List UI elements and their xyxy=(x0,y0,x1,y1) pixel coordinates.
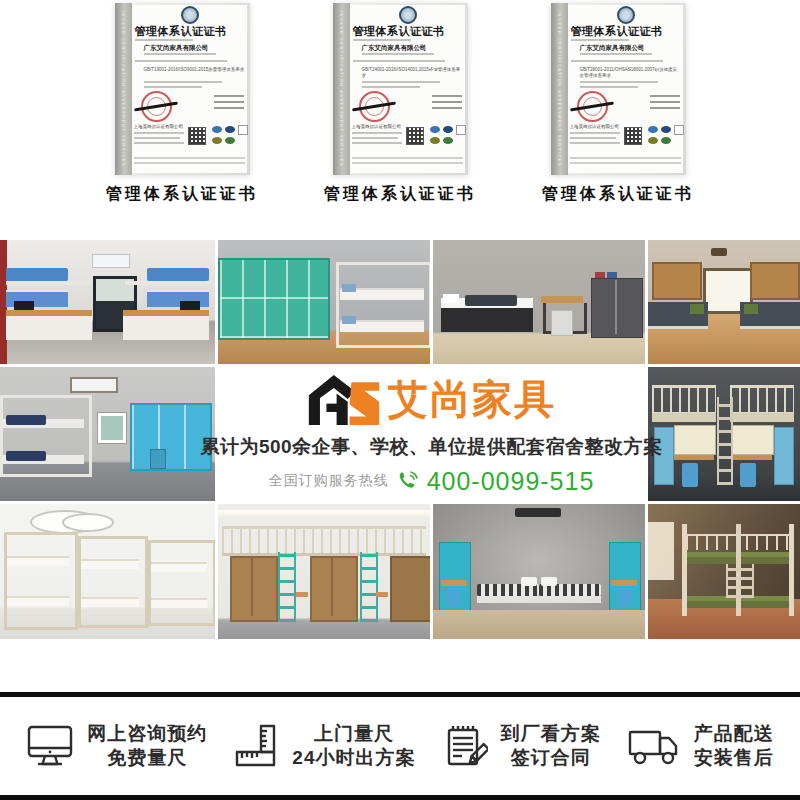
accreditation-badge-icon xyxy=(238,125,248,135)
qr-code-icon xyxy=(406,127,424,145)
date-line-bar xyxy=(650,107,680,109)
service-line1: 产品配送 xyxy=(694,722,774,746)
service-text: 网上咨询预约 免费量尺 xyxy=(87,722,207,770)
certificate-standard: GB/T24001-2016/ISO14001:2015环境管理体系要求 xyxy=(362,67,463,79)
certificate-card: INGEER CERTIFICATION ASSESSMENT SERVICES… xyxy=(333,3,468,175)
bunk-frame xyxy=(78,536,148,628)
certificate-body: 管理体系认证证书 广东艾尚家具有限公司 GB/T28001-2011/OHSAS… xyxy=(568,5,683,173)
pillow xyxy=(541,577,557,586)
contract-icon xyxy=(442,723,488,769)
service-line2: 免费量尺 xyxy=(107,746,187,770)
certificate-group: INGEER CERTIFICATION ASSESSMENT SERVICES… xyxy=(324,3,476,240)
books xyxy=(595,272,605,278)
certificate-caption: 管理体系认证证书 xyxy=(324,184,476,205)
date-line-bar xyxy=(214,101,244,103)
wood-wardrobe-doors xyxy=(230,556,278,622)
bed-frame xyxy=(441,308,533,332)
cloud-ceiling-light xyxy=(62,513,114,532)
accreditation-badge-icon xyxy=(212,137,222,144)
pillow xyxy=(443,294,459,303)
certificate-standard: GB/T19001-2016/ISO9001:2015质量管理体系要求 xyxy=(144,67,245,73)
text-line-bar xyxy=(571,39,629,41)
certifier-emblem-icon xyxy=(399,6,417,24)
certificate-spine: INGEER CERTIFICATION ASSESSMENT SERVICES xyxy=(333,3,350,175)
certificate-spine: INGEER CERTIFICATION ASSESSMENT SERVICES xyxy=(551,3,568,175)
photo-gray-room-single-bed xyxy=(433,240,645,364)
bunk-post xyxy=(682,524,687,616)
service-item-delivery-install: 产品配送 安装售后 xyxy=(627,722,774,770)
hotline-row: 全国订购服务热线 400-0099-515 xyxy=(269,467,595,496)
accreditation-badge-icon xyxy=(456,125,466,135)
blue-locker xyxy=(774,427,794,485)
accreditation-badge-icon xyxy=(443,137,453,144)
bunk-rail xyxy=(6,281,90,285)
desk-hutch xyxy=(732,425,774,455)
text-line-bar xyxy=(352,137,398,139)
lower-mattress xyxy=(81,597,139,607)
photo-cream-bunk-row xyxy=(0,504,215,639)
qr-code-icon xyxy=(188,127,206,145)
service-line1: 到厂看方案 xyxy=(501,722,601,746)
text-line-bar xyxy=(134,137,180,139)
desk-top xyxy=(541,296,583,303)
brand-name: 艾尚家具 xyxy=(388,376,556,422)
ceiling-lamp xyxy=(711,248,727,256)
text-line-bar xyxy=(352,142,402,144)
text-line-bar xyxy=(580,53,652,55)
upper-mattress xyxy=(7,556,69,566)
phone-icon xyxy=(397,470,419,492)
bed-frame xyxy=(539,596,601,603)
certificate-body: 管理体系认证证书 广东艾尚家具有限公司 GB/T19001-2016/ISO90… xyxy=(132,5,247,173)
qr-code-icon xyxy=(624,127,642,145)
certificate-company: 广东艾尚家具有限公司 xyxy=(362,44,427,53)
certificate-spine-text: INGEER CERTIFICATION ASSESSMENT SERVICES xyxy=(557,11,562,167)
bunk-frame xyxy=(336,262,430,348)
certificate-card: INGEER CERTIFICATION ASSESSMENT SERVICES… xyxy=(551,3,686,175)
certifier-emblem-icon xyxy=(617,6,635,24)
text-line-bar xyxy=(144,81,222,83)
upper-mattress xyxy=(151,562,207,572)
photo-loft-green-ladders xyxy=(218,504,430,639)
bunk-post xyxy=(789,524,794,616)
desk-top xyxy=(674,455,714,460)
cabinet-door-line xyxy=(615,280,617,334)
blue-chair xyxy=(682,463,698,487)
blue-chair xyxy=(740,463,756,487)
ceiling-light-strip xyxy=(218,510,430,513)
green-pillow xyxy=(690,304,704,314)
green-ladder xyxy=(360,552,378,622)
accreditation-badge-icon xyxy=(225,137,235,144)
text-line-bar xyxy=(362,81,440,83)
text-line-bar xyxy=(362,86,420,88)
desk-base xyxy=(123,316,209,340)
hotline-number: 400-0099-515 xyxy=(427,467,595,496)
bunk-frame xyxy=(4,532,78,630)
loft-shelf xyxy=(730,413,794,422)
text-line-bar xyxy=(135,60,227,62)
certificate-group: INGEER CERTIFICATION ASSESSMENT SERVICES… xyxy=(542,3,694,240)
date-line-bar xyxy=(214,95,244,97)
truck-icon xyxy=(627,725,681,767)
photo-army-green-bunks xyxy=(648,504,800,639)
laptop xyxy=(180,301,200,310)
service-item-onsite-measure: 上门量尺 24小时出方案 xyxy=(233,722,415,770)
wood-wardrobe-doors xyxy=(390,556,430,622)
promo-page: INGEER CERTIFICATION ASSESSMENT SERVICES… xyxy=(0,0,800,800)
photo-bunk-cyan-wardrobes xyxy=(0,367,215,501)
loft-shelf xyxy=(652,413,716,422)
accreditation-badge-icon xyxy=(648,137,658,144)
service-text: 产品配送 安装售后 xyxy=(694,722,774,770)
bed-frame xyxy=(477,596,539,603)
door-line xyxy=(331,558,333,616)
brand-logo: 艾尚家具 xyxy=(307,373,556,425)
accreditation-badge-icon xyxy=(212,126,222,133)
certificate-caption: 管理体系认证证书 xyxy=(106,184,258,205)
green-ladder xyxy=(278,552,296,622)
service-line1: 网上咨询预约 xyxy=(87,722,207,746)
upper-mattress xyxy=(81,559,139,569)
monitor-icon xyxy=(26,723,74,769)
fine-print-bar xyxy=(570,157,681,159)
date-line-bar xyxy=(650,101,680,103)
certificate-title: 管理体系认证证书 xyxy=(353,24,445,39)
certificate-standard: GB/T28001-2011/OHSAS18001:2007职业健康安全管理体系… xyxy=(580,67,681,79)
tile-floor xyxy=(433,610,645,639)
ruler-icon xyxy=(233,723,279,769)
text-line-bar xyxy=(580,81,658,83)
text-line-bar xyxy=(134,142,184,144)
text-line-bar xyxy=(144,86,202,88)
certificate-company: 广东艾尚家具有限公司 xyxy=(580,44,645,53)
service-line2: 签订合同 xyxy=(511,746,591,770)
date-line-bar xyxy=(432,107,462,109)
blue-chair xyxy=(446,588,461,606)
bunk-rail xyxy=(125,281,209,285)
text-line-bar xyxy=(362,53,434,55)
accreditation-badge-icon xyxy=(430,137,440,144)
bunk-headboard xyxy=(6,268,68,281)
loft-bed-rail xyxy=(222,526,426,556)
text-line-bar xyxy=(144,53,216,55)
certificate-issuer: 上海英格尔认证有限公司 xyxy=(352,124,402,129)
certifier-emblem-icon xyxy=(181,6,199,24)
service-text: 上门量尺 24小时出方案 xyxy=(292,722,415,770)
lower-mattress xyxy=(7,596,69,606)
photo-dark-loft-workstations xyxy=(648,367,800,501)
as-logo-mark-icon xyxy=(307,373,381,425)
certificate-group: INGEER CERTIFICATION ASSESSMENT SERVICES… xyxy=(106,3,258,240)
certificate-title: 管理体系认证证书 xyxy=(571,24,663,39)
date-line-bar xyxy=(214,107,244,109)
bunk-frame xyxy=(148,540,215,626)
wood-wardrobe-doors xyxy=(310,556,358,622)
ceiling-light xyxy=(70,377,118,393)
desk-top xyxy=(376,592,388,597)
service-item-online-consult: 网上咨询预约 免费量尺 xyxy=(26,722,207,770)
certificate-issuer: 上海英格尔认证有限公司 xyxy=(570,124,620,129)
desk-hutch xyxy=(674,425,716,455)
service-text: 到厂看方案 签订合同 xyxy=(501,722,601,770)
text-line-bar xyxy=(134,132,184,134)
storage-cabinet xyxy=(591,278,643,338)
fine-print-bar xyxy=(570,162,681,164)
window-glow xyxy=(648,522,674,580)
bunk-stairs xyxy=(726,564,754,598)
service-line2: 24小时出方案 xyxy=(292,746,415,770)
date-line-bar xyxy=(432,101,462,103)
fine-print-bar xyxy=(134,162,245,164)
brand-promo-panel: 艾尚家具 累计为500余企事、学校、单位提供配套宿舍整改方案 全国订购服务热线 … xyxy=(218,367,645,501)
accreditation-badge-icon xyxy=(430,126,440,133)
desk-top xyxy=(296,592,308,597)
navy-blanket xyxy=(6,451,46,461)
accreditation-badge-icon xyxy=(661,137,671,144)
desk-base xyxy=(6,316,92,340)
fine-print-bar xyxy=(134,157,245,159)
service-item-factory-contract: 到厂看方案 签订合同 xyxy=(442,722,601,770)
fine-print-bar xyxy=(352,162,463,164)
service-line2: 安装售后 xyxy=(694,746,774,770)
text-line-bar xyxy=(570,137,616,139)
bunk-frame xyxy=(0,395,92,477)
pillow xyxy=(342,284,356,292)
certificate-spine-text: INGEER CERTIFICATION ASSESSMENT SERVICES xyxy=(121,11,126,167)
date-line-bar xyxy=(650,95,680,97)
text-line-bar xyxy=(353,39,411,41)
certificate-body: 管理体系认证证书 广东艾尚家具有限公司 GB/T24001-2016/ISO14… xyxy=(350,5,465,173)
photo-teal-lockers xyxy=(218,240,430,364)
door-line xyxy=(251,558,253,616)
fine-print-bar xyxy=(352,157,463,159)
navy-blanket xyxy=(6,415,46,425)
text-line-bar xyxy=(580,86,638,88)
certificate-caption: 管理体系认证证书 xyxy=(542,184,694,205)
certificate-card: INGEER CERTIFICATION ASSESSMENT SERVICES… xyxy=(115,3,250,175)
certificate-issuer: 上海英格尔认证有限公司 xyxy=(134,124,184,129)
promo-tagline: 累计为500余企事、学校、单位提供配套宿舍整改方案 xyxy=(200,434,662,460)
wall-picture xyxy=(98,413,126,443)
text-line-bar xyxy=(570,132,620,134)
photo-wood-floor-dorm xyxy=(648,240,800,364)
chair xyxy=(551,310,573,336)
books xyxy=(607,272,617,278)
locker-bank xyxy=(218,258,330,340)
service-line1: 上门量尺 xyxy=(314,722,394,746)
desk-top xyxy=(732,455,772,460)
text-line-bar xyxy=(135,39,193,41)
desk-top xyxy=(441,580,467,586)
text-line-bar xyxy=(353,60,445,62)
certificate-title: 管理体系认证证书 xyxy=(135,24,227,39)
bunk-headboard xyxy=(147,268,209,281)
certificate-spine-text: INGEER CERTIFICATION ASSESSMENT SERVICES xyxy=(339,11,344,167)
text-line-bar xyxy=(352,132,402,134)
text-line-bar xyxy=(571,60,663,62)
pillow xyxy=(521,577,537,586)
accreditation-badge-icon xyxy=(648,126,658,133)
certificate-spine: INGEER CERTIFICATION ASSESSMENT SERVICES xyxy=(115,3,132,175)
certificates-section: INGEER CERTIFICATION ASSESSMENT SERVICES… xyxy=(0,0,800,240)
date-line-bar xyxy=(432,95,462,97)
accreditation-badge-icon xyxy=(225,126,235,133)
laptop xyxy=(14,301,34,310)
accreditation-badge-icon xyxy=(443,126,453,133)
desk-top xyxy=(611,580,637,586)
divider-line xyxy=(0,795,800,800)
ceiling-light xyxy=(515,508,561,517)
loft-bed-rail xyxy=(730,385,794,414)
services-bar: 网上咨询预约 免费量尺 上门量尺 24小时出方案 xyxy=(0,697,800,795)
chair xyxy=(150,449,166,469)
hotline-label: 全国订购服务热线 xyxy=(269,472,389,490)
wardrobe xyxy=(750,262,800,300)
folded-blanket xyxy=(465,295,517,306)
photo-blue-bunk-dorm xyxy=(0,240,215,364)
pillow xyxy=(342,316,356,324)
ceiling-light xyxy=(92,254,130,268)
lower-mattress xyxy=(151,598,207,608)
wardrobe xyxy=(652,262,702,300)
accreditation-badge-icon xyxy=(661,126,671,133)
certificate-company: 广东艾尚家具有限公司 xyxy=(144,44,209,53)
blue-chair xyxy=(617,588,632,606)
text-line-bar xyxy=(570,142,620,144)
accreditation-badge-icon xyxy=(674,125,684,135)
loft-bed-rail xyxy=(652,385,716,414)
green-pillow xyxy=(744,304,758,314)
photo-striped-beds-room xyxy=(433,504,645,639)
ladder xyxy=(717,397,733,485)
